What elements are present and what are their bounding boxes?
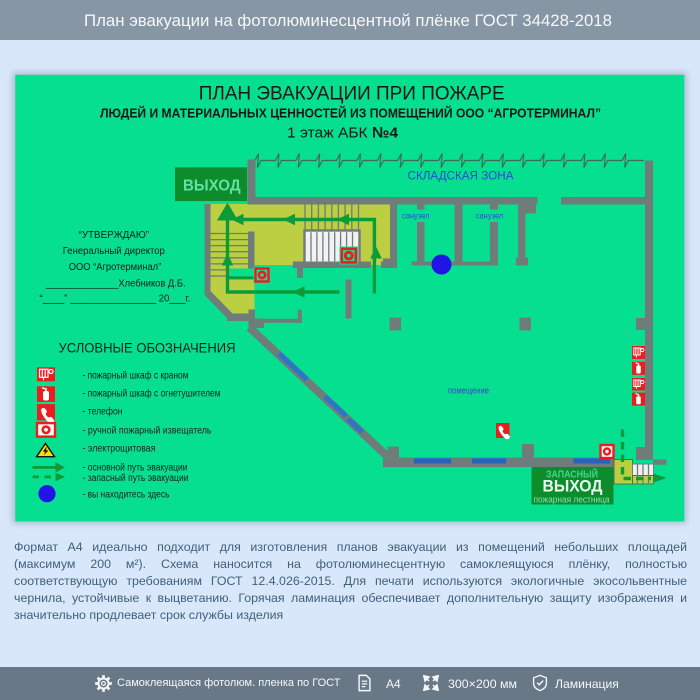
svg-text:ВЫХОД: ВЫХОД: [543, 477, 603, 496]
svg-text:ВЫХОД: ВЫХОД: [183, 177, 241, 194]
svg-text:пожарная лестница: пожарная лестница: [534, 495, 610, 505]
svg-text:“____” ________________ 20___г: “____” ________________ 20___г.: [40, 294, 191, 305]
svg-text:- основной путь эвакуации: - основной путь эвакуации: [83, 463, 188, 474]
svg-text:санузел: санузел: [476, 211, 504, 221]
svg-text:- запасный путь эвакуации: - запасный путь эвакуации: [83, 473, 189, 484]
svg-text:- электрощитовая: - электрощитовая: [83, 444, 156, 455]
svg-text:санузел: санузел: [402, 211, 430, 221]
svg-text:помещение: помещение: [448, 386, 489, 396]
svg-text:ЛЮДЕЙ И МАТЕРИАЛЬНЫХ ЦЕННОСТЕЙ: ЛЮДЕЙ И МАТЕРИАЛЬНЫХ ЦЕННОСТЕЙ ИЗ ПОМЕЩЕ…: [100, 106, 601, 121]
svg-text:ПЛАН ЭВАКУАЦИИ ПРИ ПОЖАРЕ: ПЛАН ЭВАКУАЦИИ ПРИ ПОЖАРЕ: [199, 84, 505, 105]
svg-text:Генеральный директор: Генеральный директор: [63, 246, 165, 257]
svg-text:План эвакуации на фотолюминесц: План эвакуации на фотолюминесцентной плё…: [84, 11, 612, 30]
svg-text:- телефон: - телефон: [83, 406, 123, 418]
svg-text:- пожарный шкаф с краном: - пожарный шкаф с краном: [83, 370, 189, 382]
svg-text:______________Хлебников Д.Б.: ______________Хлебников Д.Б.: [45, 278, 186, 290]
svg-text:УСЛОВНЫЕ ОБОЗНАЧЕНИЯ: УСЛОВНЫЕ ОБОЗНАЧЕНИЯ: [59, 340, 236, 356]
svg-text:СКЛАДСКАЯ ЗОНА: СКЛАДСКАЯ ЗОНА: [408, 169, 515, 183]
svg-text:- вы находитесь здесь: - вы находитесь здесь: [83, 490, 170, 501]
svg-text:- ручной пожарный извещатель: - ручной пожарный извещатель: [83, 426, 212, 437]
svg-text:“УТВЕРЖДАЮ”: “УТВЕРЖДАЮ”: [79, 230, 150, 241]
svg-text:ООО “Агротерминал”: ООО “Агротерминал”: [69, 262, 162, 273]
svg-text:- пожарный шкаф с огнетушителе: - пожарный шкаф с огнетушителем: [83, 388, 221, 400]
svg-text:1 этаж АБК №4: 1 этаж АБК №4: [287, 125, 399, 142]
